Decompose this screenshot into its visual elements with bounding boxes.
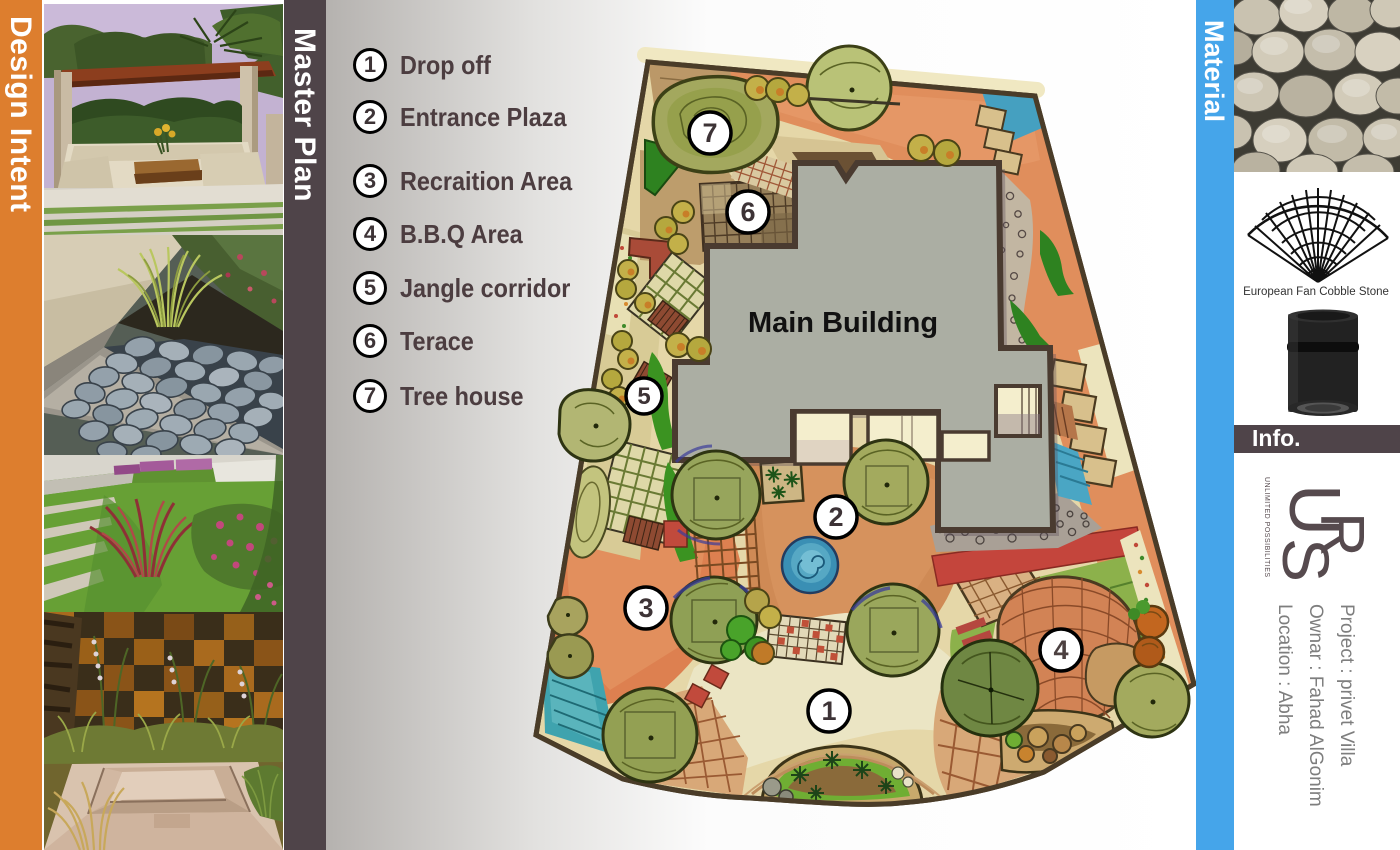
svg-text:7: 7 — [702, 118, 717, 148]
svg-text:5: 5 — [637, 383, 650, 410]
svg-text:4: 4 — [1053, 635, 1068, 665]
svg-text:3: 3 — [638, 593, 653, 623]
svg-text:1: 1 — [821, 696, 836, 726]
svg-text:6: 6 — [740, 197, 755, 227]
svg-text:2: 2 — [828, 502, 843, 532]
svg-text:Main Building: Main Building — [748, 307, 938, 339]
